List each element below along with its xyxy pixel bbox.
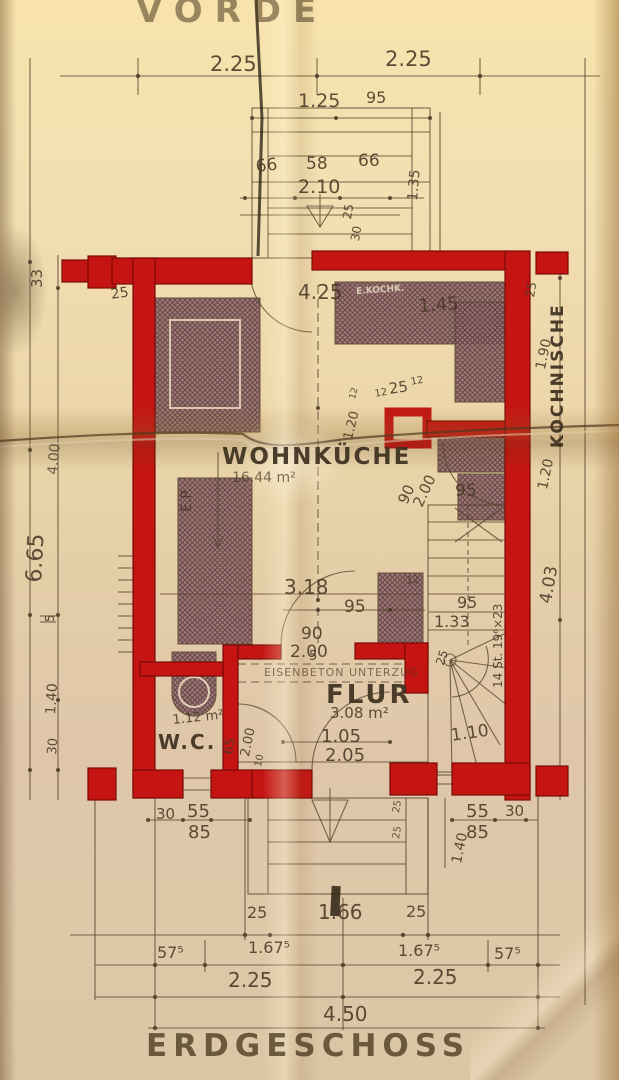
- dim-140-left: 1.40: [44, 683, 60, 715]
- dim-30-bl: 30: [156, 807, 175, 822]
- dim-66-left: 66: [255, 157, 278, 176]
- dim-25-chimney: 25: [388, 379, 409, 397]
- area-wohnkueche: 16.44 m²: [232, 471, 296, 485]
- dim-95-porch: 95: [366, 90, 386, 106]
- area-flur: 3.08 m²: [330, 706, 389, 721]
- title-bottom: ERDGESCHOSS: [146, 1031, 470, 1062]
- dim-55-br: 55: [466, 803, 489, 821]
- dim-400-left: 4.00: [46, 443, 63, 475]
- dim-665-left: 6.65: [24, 533, 49, 583]
- dim-58-porch: 58: [306, 156, 328, 173]
- dim-95-stair: 95: [457, 595, 477, 611]
- dim-225-bl: 2.25: [228, 970, 273, 990]
- room-kochnische: KOCHNISCHE: [550, 303, 567, 448]
- dim-25-left-wall: 25: [110, 286, 130, 302]
- dim-25-bsr: 25: [406, 904, 426, 920]
- dim-450: 4.50: [323, 1004, 368, 1024]
- dim-66-right: 66: [358, 153, 380, 170]
- dim-25-right-top: 25: [524, 281, 538, 298]
- dim-55-bl: 55: [187, 803, 210, 821]
- note-beam: EISENBETON UNTERZUG: [264, 667, 419, 678]
- room-wc: W.C.: [158, 732, 216, 752]
- dim-1675-b: 1.67⁵: [398, 943, 440, 959]
- dim-166: 1.66: [318, 902, 363, 922]
- dim-85-bl: 85: [188, 824, 211, 842]
- dim-65-wc: 65: [222, 737, 238, 756]
- dim-5-wall: 5: [309, 650, 317, 663]
- dim-225-top-left: 2.25: [210, 54, 257, 75]
- dim-12-heater: 12: [406, 575, 420, 587]
- dim-225-br: 2.25: [413, 967, 458, 987]
- dim-125-porch: 1.25: [298, 92, 340, 111]
- dim-25-bsl: 25: [247, 905, 267, 921]
- dim-225-top-right: 2.25: [385, 49, 432, 70]
- dim-575-b: 57⁵: [494, 946, 521, 962]
- dim-95-mid: 95: [344, 599, 366, 616]
- dim-318: 3.18: [284, 577, 329, 597]
- dim-145: 1.45: [418, 295, 459, 316]
- dim-135-porch: 1.35: [406, 169, 423, 201]
- dim-25-porch: 25: [341, 203, 355, 220]
- dim-30-left: 30: [46, 738, 60, 756]
- dim-33-left: 33: [30, 269, 45, 288]
- dim-1675-a: 1.67⁵: [248, 940, 290, 956]
- dim-210-porch: 2.10: [298, 178, 340, 197]
- dim-95-door: 95: [455, 483, 477, 500]
- dim-205: 2.05: [325, 747, 365, 765]
- dim-5-left: 5: [44, 614, 56, 622]
- dim-575-a: 57⁵: [157, 945, 184, 961]
- dim-90-flurdoor: 90: [301, 626, 323, 643]
- floor-plan-sheet: VORDE2.252.251.25956658662.101.352530332…: [0, 0, 619, 1080]
- dim-105: 1.05: [321, 728, 361, 746]
- label-ep: E.P.: [180, 488, 194, 512]
- dim-30-br: 30: [505, 804, 524, 819]
- note-stairs: 14 St. 19⁶×23: [492, 604, 504, 688]
- room-wohnkueche: WOHNKÜCHE: [222, 446, 411, 469]
- dim-30-porch: 30: [349, 225, 363, 242]
- title-top: VORDE: [136, 0, 328, 28]
- dim-133-stair: 1.33: [434, 614, 470, 630]
- dim-425: 4.25: [298, 282, 343, 302]
